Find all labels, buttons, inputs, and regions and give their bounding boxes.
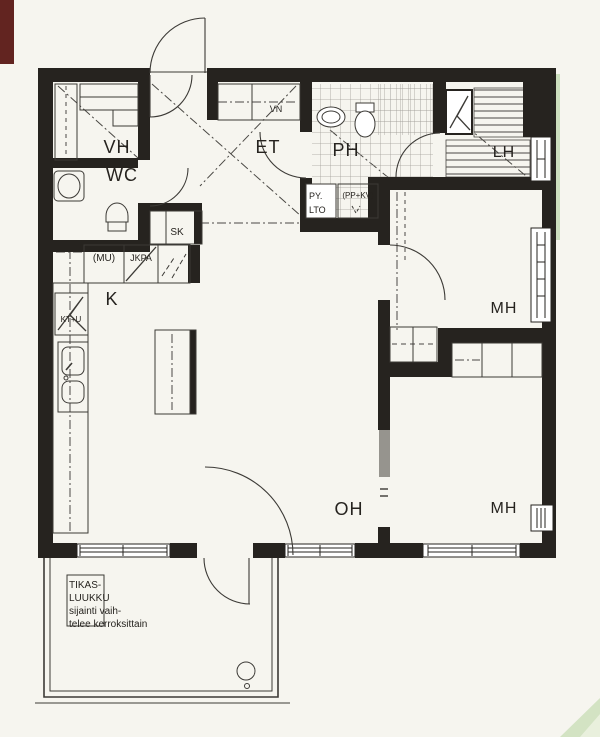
- wall-sk-right: [194, 203, 202, 244]
- label-mu: (MU): [93, 253, 115, 264]
- window-bottom-3: [423, 544, 520, 557]
- label-pp-kv: (PP+KV): [342, 191, 374, 200]
- wall-mh-upper-left-a: [378, 190, 390, 245]
- window-right-sauna: [531, 137, 551, 181]
- wall-between-bedrooms-jog: [438, 328, 452, 377]
- wall-bottom-seg2: [253, 543, 285, 558]
- room-label-lh: LH: [493, 144, 515, 161]
- wc-toilet: [106, 203, 128, 231]
- window-right-mh-upper: [531, 228, 551, 322]
- vent-right-mh-lower: [531, 505, 553, 531]
- wall-between-bedrooms-right: [452, 328, 542, 343]
- wall-left: [38, 82, 53, 543]
- label-vn: VN: [270, 104, 283, 114]
- window-bottom-1: [77, 544, 170, 557]
- wall-bottom-seg1: [170, 543, 197, 558]
- room-label-mh-upper: MH: [491, 300, 518, 317]
- label-jkpa: JKPA: [130, 253, 152, 263]
- sauna-stove: [446, 90, 472, 134]
- room-label-et: ET: [255, 137, 280, 157]
- ph-basin: [317, 107, 345, 127]
- label-kt-u: KT+U: [61, 315, 82, 324]
- scan-red-strip: [0, 0, 14, 64]
- wall-ph-left-upper: [300, 82, 312, 132]
- room-label-ph: PH: [332, 140, 359, 160]
- wall-mh-lower-left-b: [378, 527, 390, 558]
- wall-bottom-seg4: [520, 543, 556, 558]
- wall-et-stub: [207, 82, 218, 120]
- wall-top-right: [207, 68, 556, 82]
- label-sk: SK: [170, 227, 184, 238]
- room-label-vh: VH: [103, 137, 130, 157]
- wall-bottom-corner-left: [38, 543, 77, 558]
- floor-plan-page: VH WC ET PH LH K OH MH MH VN SK (MU) JKP…: [0, 0, 600, 737]
- note-line-3: sijainti vaih-: [69, 606, 121, 617]
- wall-mh-lower-left-hatched: [379, 430, 390, 477]
- wall-sauna: [433, 82, 446, 133]
- room-label-mh-lower: MH: [491, 500, 518, 517]
- wall-wc-bottom: [53, 240, 150, 252]
- note-line-2: LUUKKU: [69, 593, 110, 604]
- wall-between-bedrooms-left: [378, 362, 438, 377]
- note-line-4: telee kerroksittain: [69, 619, 147, 630]
- wall-mh-upper-top: [378, 177, 542, 190]
- label-lto: LTO: [309, 205, 326, 215]
- wall-top-left: [38, 68, 150, 82]
- note-line-1: TIKAS-: [69, 580, 101, 591]
- room-label-wc: WC: [106, 165, 138, 185]
- wall-vh-right: [138, 82, 150, 160]
- room-label-oh: OH: [335, 499, 364, 519]
- label-py: PY.: [309, 191, 322, 201]
- wall-sk-left: [138, 203, 150, 244]
- wall-mh-upper-left-b: [378, 300, 390, 362]
- ph-toilet: [355, 103, 375, 137]
- window-bottom-2: [285, 544, 355, 557]
- wc-basin: [58, 174, 80, 198]
- floor-plan: VH WC ET PH LH K OH MH MH VN SK (MU) JKP…: [0, 0, 600, 737]
- wall-mh-lower-left-a: [378, 377, 390, 430]
- room-label-k: K: [105, 289, 118, 309]
